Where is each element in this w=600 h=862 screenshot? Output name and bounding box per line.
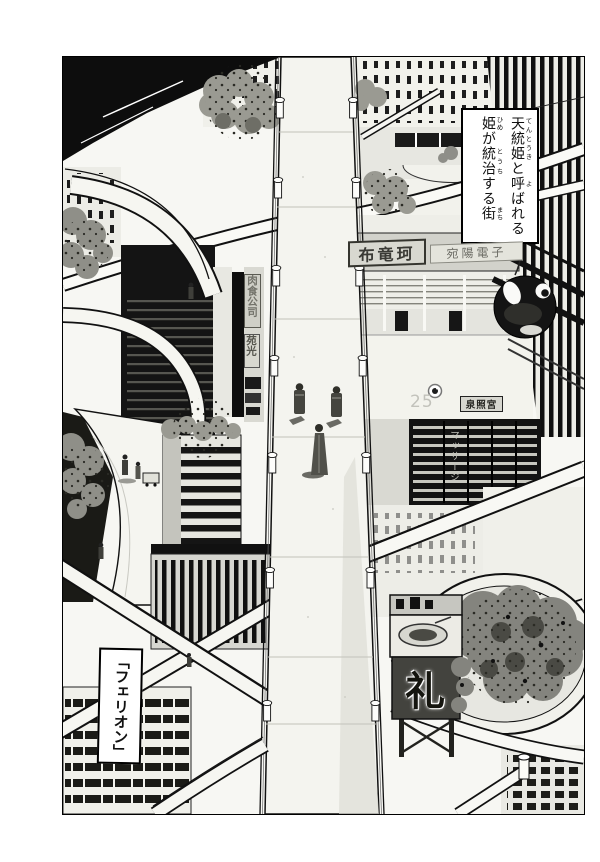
building-sign-enko-text: 苑光	[245, 335, 257, 356]
building-sign-company-text: 肉食公司	[246, 275, 258, 317]
manga-panel: 天統姫てんとうきと呼よばれる 姫ひめが統治とうちする街まち 「フェリオン」 布竜…	[62, 56, 585, 815]
narration-box: 天統姫てんとうきと呼よばれる 姫ひめが統治とうちする街まち	[461, 108, 539, 244]
building-sign-dragon: 布竜珂	[348, 239, 426, 268]
building-sign-electronics-text: 宛陽電子	[446, 243, 506, 262]
building-sign-company: 肉食公司	[244, 274, 261, 328]
narration-line-1: 天統姫てんとうきと呼よばれる	[503, 116, 532, 236]
narration-line-2: 姫ひめが統治とうちする街まち	[474, 116, 503, 236]
building-sign-enko: 苑光	[244, 334, 260, 368]
building-sign-massage: マッサージ	[447, 430, 460, 492]
billboard-kanji-text: 礼	[405, 659, 445, 717]
building-sign-dragon-text: 布竜珂	[358, 240, 415, 266]
title-caption-box: 「フェリオン」	[97, 648, 143, 765]
title-caption-text: 「フェリオン」	[111, 653, 129, 758]
manga-page: { "page_type": "manga cityscape page", "…	[0, 0, 600, 862]
billboard-kanji: 礼	[400, 660, 450, 716]
building-sign-shrine-text: 泉照宮	[466, 397, 498, 411]
building-floor-number: 25	[410, 392, 434, 412]
building-sign-massage-text: マッサージ	[448, 430, 459, 483]
building-sign-shrine: 泉照宮	[460, 396, 503, 412]
building-sign-electronics: 宛陽電子	[430, 241, 523, 263]
building-floor-number-text: 25	[410, 392, 434, 412]
